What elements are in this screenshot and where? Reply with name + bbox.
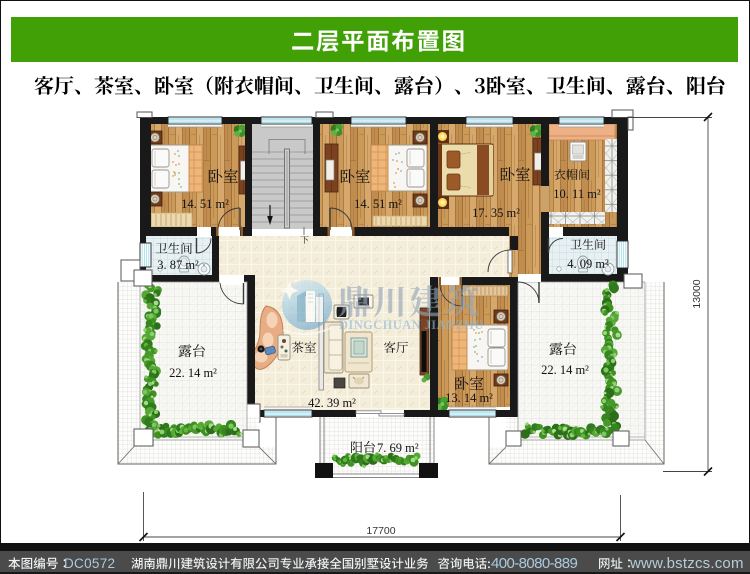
svg-text:17. 35 m²: 17. 35 m² [472, 206, 520, 220]
svg-text:4. 09 m²: 4. 09 m² [567, 257, 609, 271]
svg-text:DC0572: DC0572 [64, 556, 115, 571]
svg-text:17700: 17700 [366, 525, 395, 537]
svg-text:www.bstzcs.com: www.bstzcs.com [629, 555, 744, 572]
svg-text:DINGCHUAN JIANZHU: DINGCHUAN JIANZHU [339, 318, 484, 332]
svg-text:3. 87 m²: 3. 87 m² [157, 258, 199, 272]
svg-text:7. 69 m²: 7. 69 m² [377, 441, 419, 455]
svg-text:400-8080-889: 400-8080-889 [491, 555, 577, 572]
svg-text:22. 14 m²: 22. 14 m² [541, 363, 589, 377]
svg-text:10. 11 m²: 10. 11 m² [553, 187, 601, 201]
svg-text:14. 51 m²: 14. 51 m² [181, 197, 229, 211]
svg-text:22. 14 m²: 22. 14 m² [169, 366, 217, 380]
svg-text:42. 39 m²: 42. 39 m² [308, 396, 356, 410]
svg-text:14. 51 m²: 14. 51 m² [354, 197, 402, 211]
svg-text:13000: 13000 [691, 279, 703, 308]
svg-text:13. 14 m²: 13. 14 m² [445, 391, 493, 405]
